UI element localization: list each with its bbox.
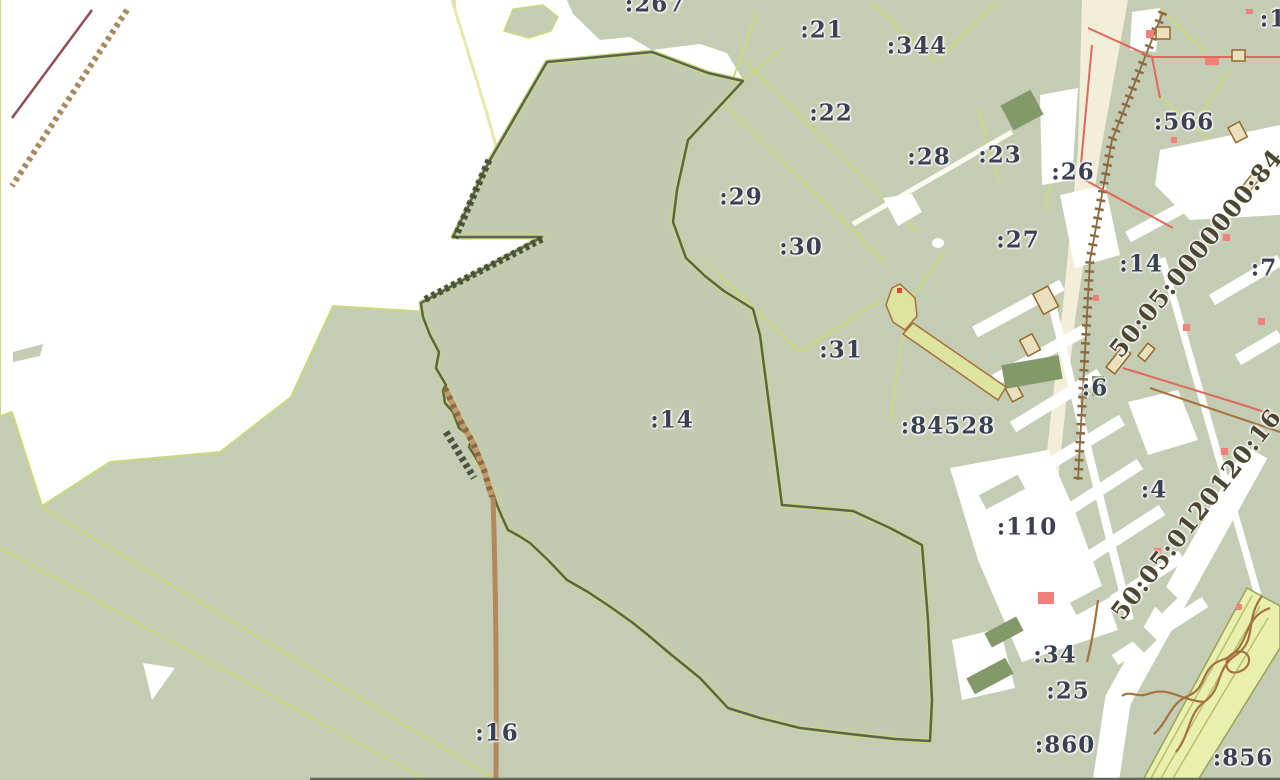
map-canvas[interactable] bbox=[0, 0, 1280, 780]
white-gap-dot bbox=[932, 238, 944, 248]
cadastral-map-screen: :267:21:344:22:28:23:26:566:1:29:30:27:1… bbox=[0, 0, 1280, 780]
